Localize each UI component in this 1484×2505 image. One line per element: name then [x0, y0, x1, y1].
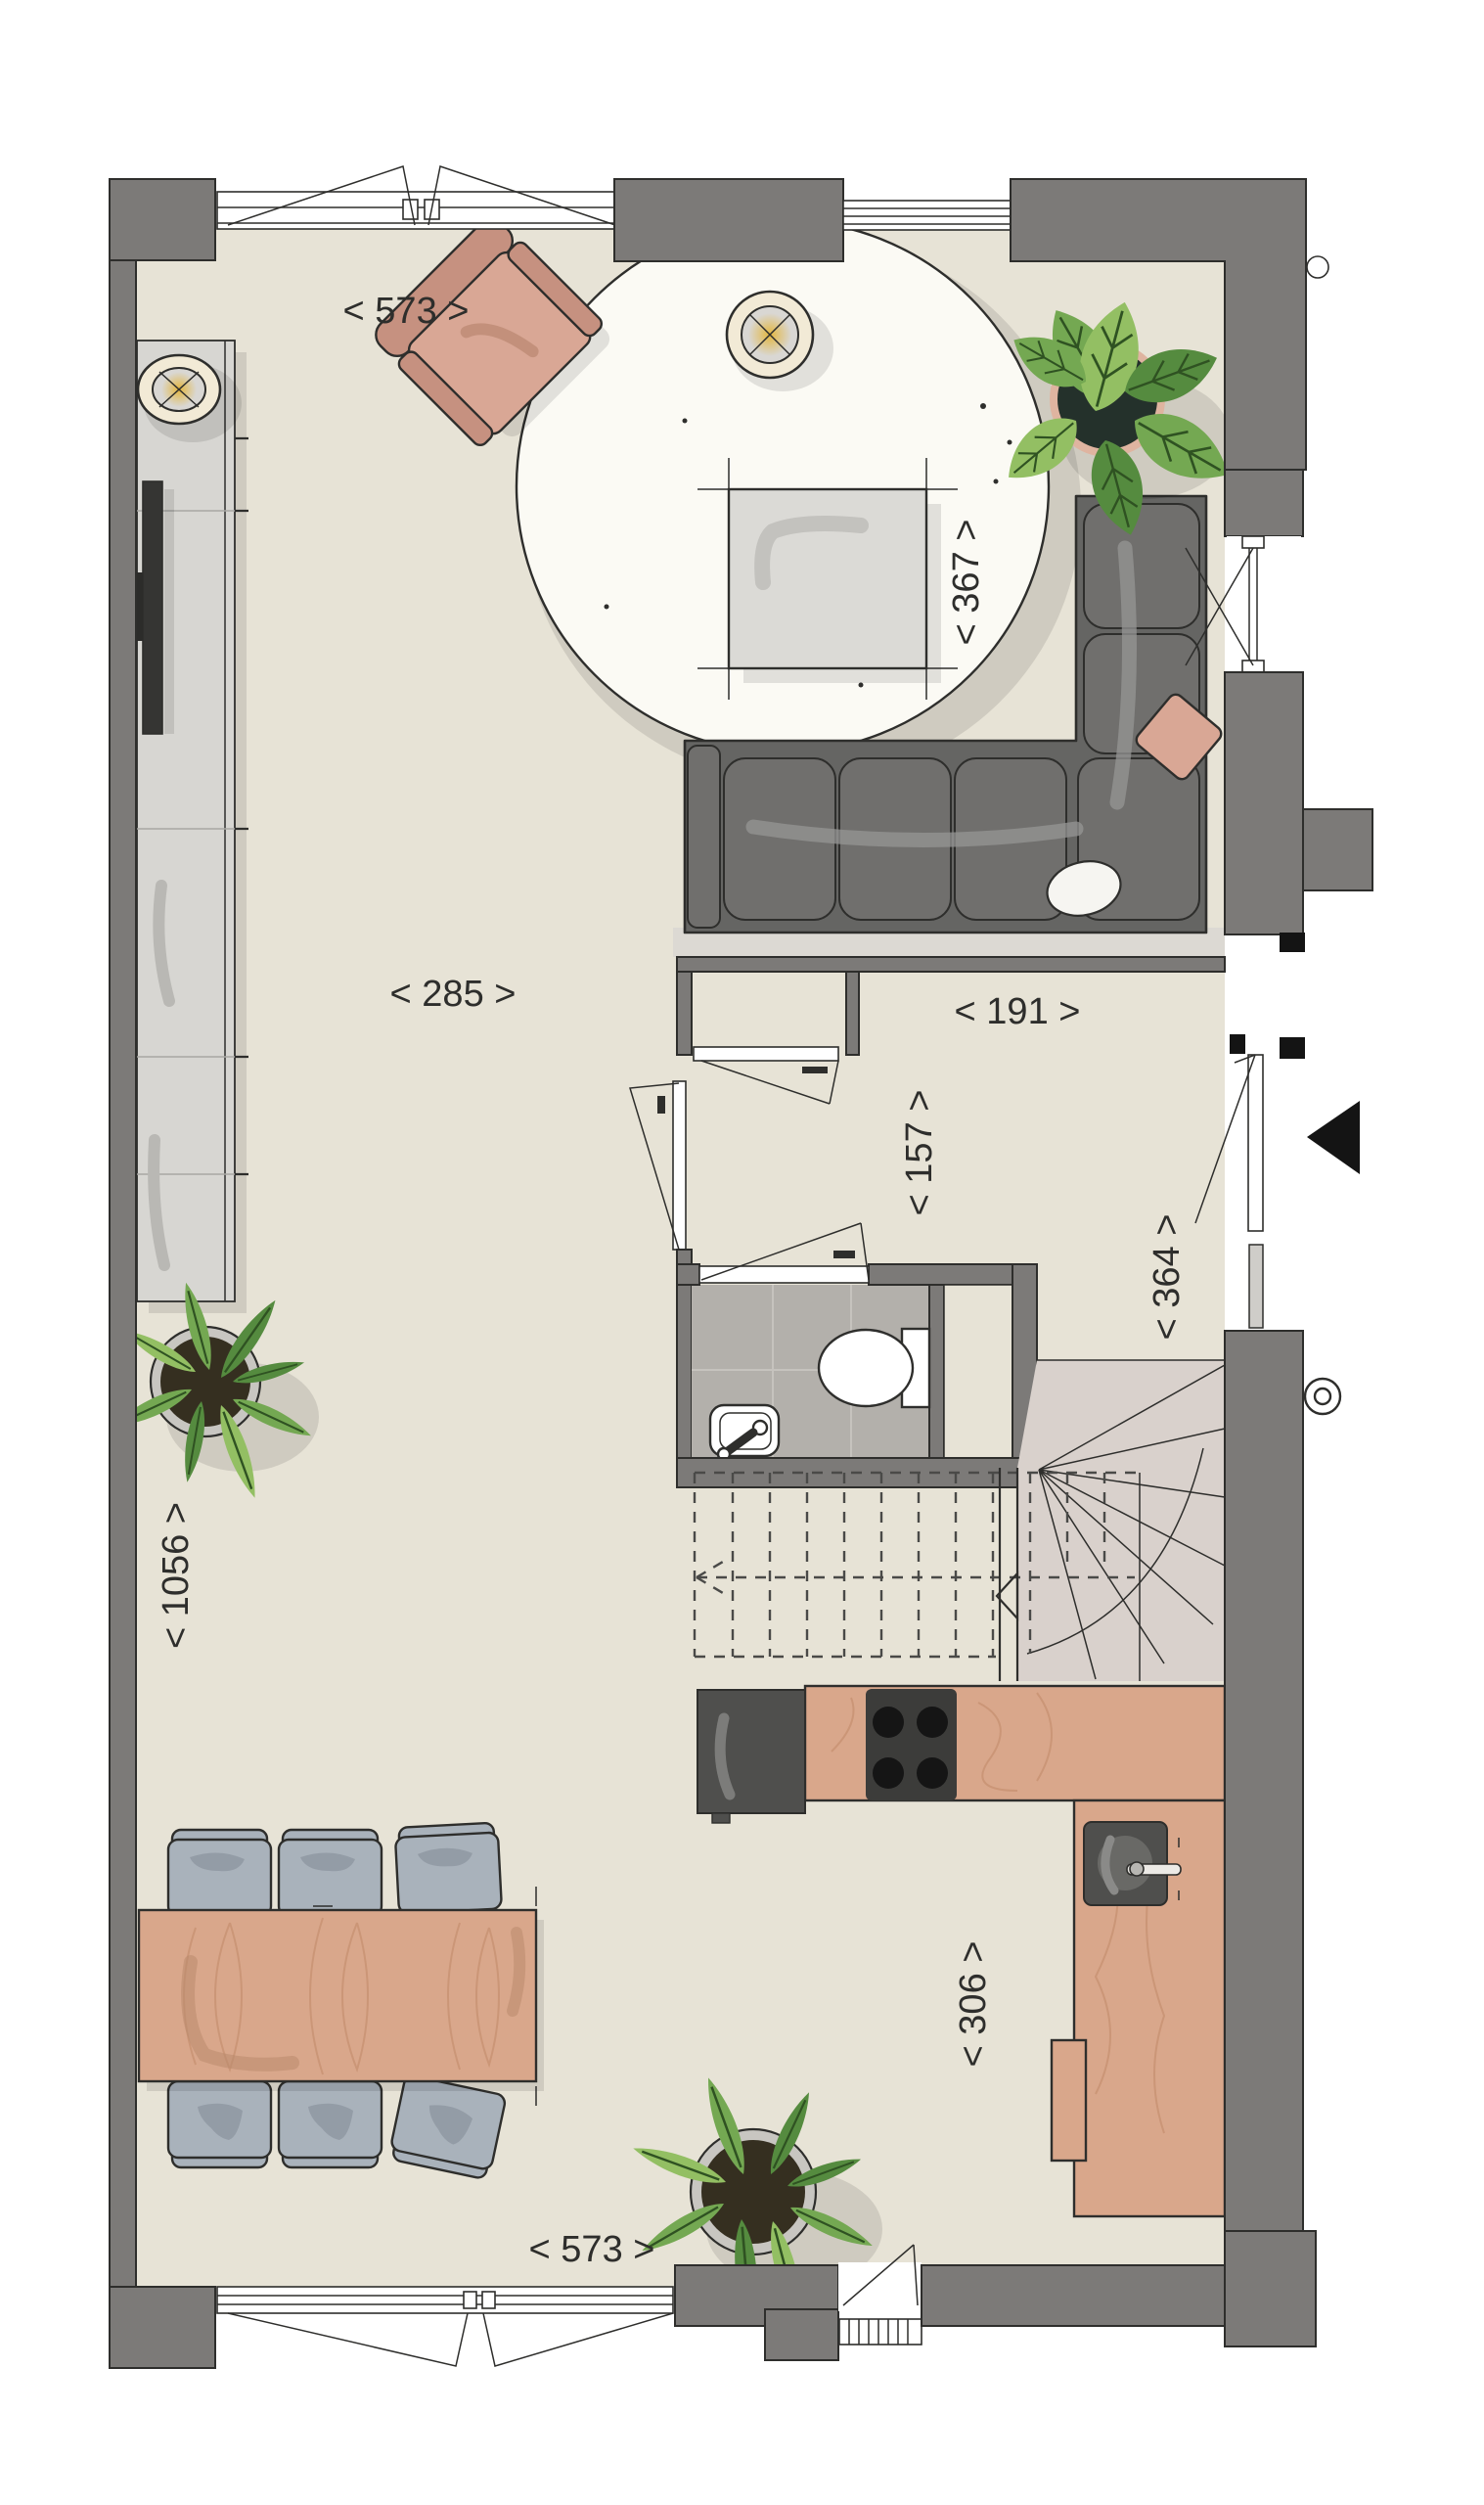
dimension-label: < 306 >: [953, 1941, 994, 2068]
exterior-double-circle-icon: [1305, 1379, 1340, 1414]
exterior-fixture-icon: [1307, 256, 1328, 278]
wall-right-lower: [1225, 1331, 1303, 2233]
stove-icon: [866, 1689, 957, 1800]
wall-pier: [1303, 809, 1372, 890]
tv-sideboard: [136, 341, 248, 1313]
dining-chair: [394, 1823, 501, 1914]
dimension-label: < 573 >: [529, 2229, 655, 2270]
dining-area: [139, 1823, 544, 2180]
dining-table: [139, 1887, 544, 2106]
dimension-label: < 191 >: [955, 991, 1081, 1032]
floor-plan-page: < 573 > < 367 > < 285 > < 191 > < 157 > …: [0, 0, 1484, 2505]
dimension-label: < 367 >: [946, 520, 987, 646]
floor-plan-drawing: < 573 > < 367 > < 285 > < 191 > < 157 > …: [0, 0, 1484, 2505]
wall-left: [110, 260, 136, 2287]
kitchen-sink-icon: [1084, 1822, 1181, 1905]
wall-corner-bottom-left: [110, 2287, 215, 2368]
dimension-label: < 573 >: [343, 291, 470, 332]
wall-living-hall: [677, 957, 1225, 972]
toilet-icon: [819, 1329, 929, 1407]
oven-block: [697, 1690, 805, 1823]
meter-box-icon: [1280, 933, 1305, 952]
dimension-label: < 157 >: [899, 1090, 940, 1216]
coffee-table: [697, 458, 958, 700]
dining-chair: [279, 2081, 382, 2167]
wall-corner-top-left: [110, 179, 215, 260]
dimension-label: < 285 >: [390, 974, 517, 1015]
dining-chair: [168, 2081, 271, 2167]
dimension-label: < 1056 >: [156, 1502, 197, 1649]
wall-corner-bottom-right: [1225, 2231, 1316, 2346]
dining-chair: [279, 1830, 382, 1916]
meter-cupboard: [944, 1285, 1012, 1458]
wall-top-middle: [614, 179, 843, 261]
dimension-label: < 364 >: [1147, 1214, 1188, 1341]
door-sidelight: [1249, 1245, 1263, 1328]
window-top-right-fixed: [843, 201, 1011, 230]
sink-icon: [710, 1405, 779, 1460]
winder-treads: [1017, 1360, 1225, 1681]
dining-chair: [168, 1830, 271, 1916]
wall-right-mid: [1225, 672, 1303, 934]
door-steps: [839, 2319, 922, 2345]
kitchen-side-cabinet: [1052, 2040, 1086, 2161]
